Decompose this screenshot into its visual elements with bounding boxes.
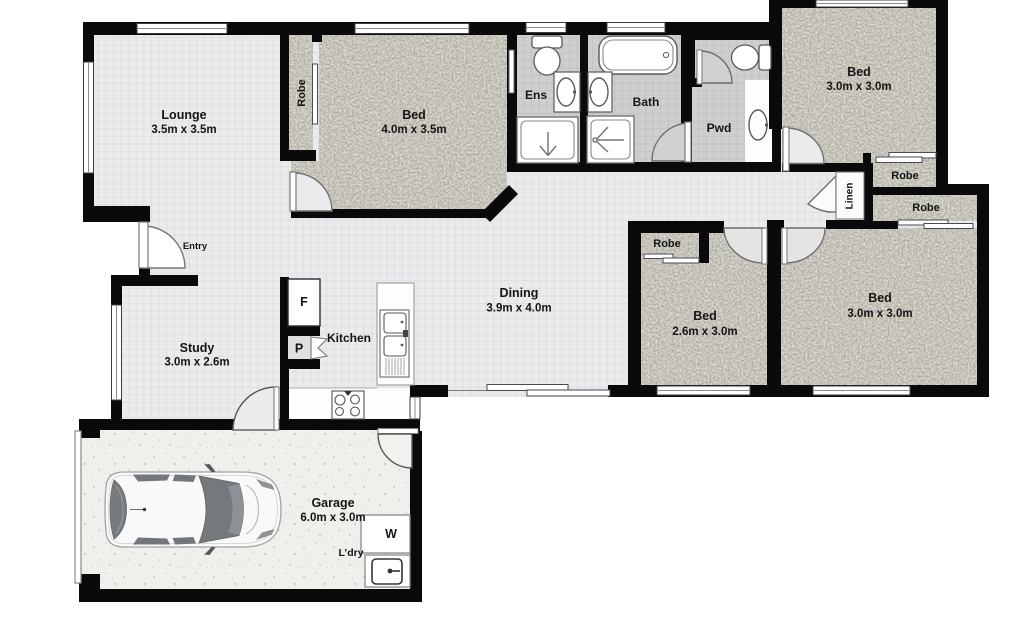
svg-text:Bed: Bed [847, 65, 871, 79]
svg-text:Robe: Robe [296, 79, 308, 107]
svg-text:3.5m x 3.5m: 3.5m x 3.5m [151, 124, 216, 136]
svg-text:Robe: Robe [891, 170, 919, 182]
svg-text:6.0m x 3.0m: 6.0m x 3.0m [300, 512, 365, 524]
svg-text:Bed: Bed [868, 291, 892, 305]
svg-text:Kitchen: Kitchen [327, 331, 371, 345]
svg-text:W: W [385, 527, 397, 541]
svg-text:2.6m x 3.0m: 2.6m x 3.0m [672, 326, 737, 338]
svg-text:L’dry: L’dry [338, 547, 363, 559]
svg-text:F: F [300, 295, 308, 309]
svg-text:Study: Study [180, 341, 215, 355]
svg-text:Bed: Bed [693, 309, 717, 323]
svg-text:Bed: Bed [402, 108, 426, 122]
svg-text:Ens: Ens [525, 88, 547, 102]
svg-text:Garage: Garage [311, 496, 354, 510]
svg-text:3.0m x 3.0m: 3.0m x 3.0m [826, 81, 891, 93]
svg-text:Lounge: Lounge [161, 108, 206, 122]
svg-text:3.0m x 3.0m: 3.0m x 3.0m [847, 308, 912, 320]
svg-text:3.0m x 2.6m: 3.0m x 2.6m [164, 357, 229, 369]
svg-text:4.0m x 3.5m: 4.0m x 3.5m [381, 124, 446, 136]
svg-text:Pwd: Pwd [707, 121, 732, 135]
svg-text:Robe: Robe [653, 238, 681, 250]
svg-text:3.9m x 4.0m: 3.9m x 4.0m [486, 303, 551, 315]
svg-text:Entry: Entry [183, 241, 208, 252]
svg-text:Linen: Linen [845, 183, 856, 210]
svg-text:Robe: Robe [912, 202, 940, 214]
svg-text:Dining: Dining [500, 286, 539, 300]
svg-text:Bath: Bath [633, 95, 660, 109]
svg-text:P: P [295, 342, 303, 356]
